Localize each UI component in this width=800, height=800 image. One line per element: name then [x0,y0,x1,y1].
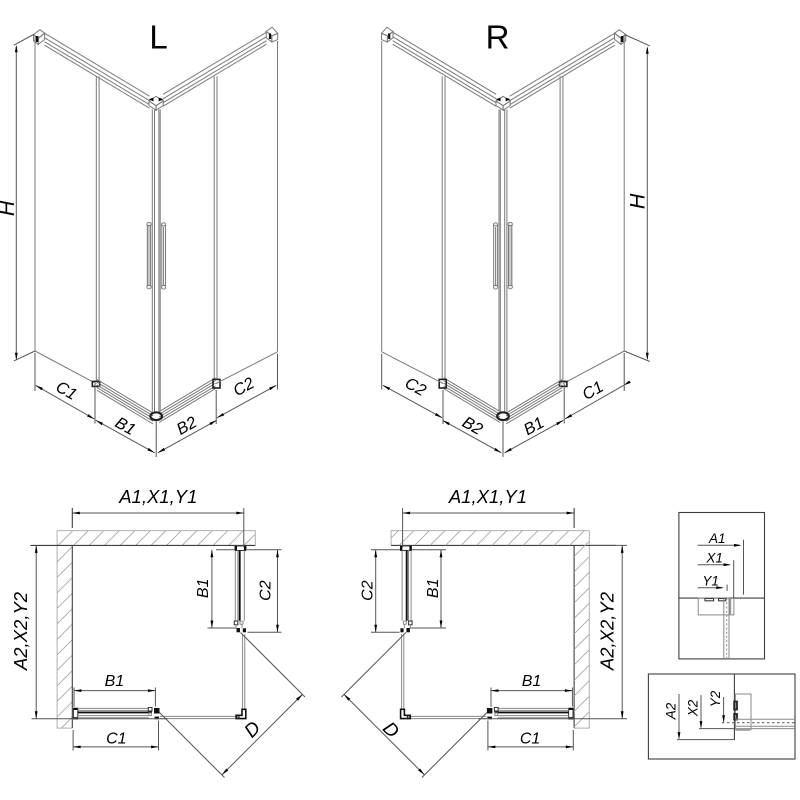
svg-text:B1: B1 [195,579,212,599]
svg-text:B1: B1 [425,579,442,599]
svg-text:X1: X1 [705,550,723,565]
svg-text:C1: C1 [520,730,540,747]
svg-text:A1,X1,Y1: A1,X1,Y1 [448,486,527,507]
svg-text:A1: A1 [708,531,726,546]
svg-text:C1: C1 [106,730,126,747]
svg-text:H: H [0,200,19,216]
svg-text:A2: A2 [664,702,679,720]
svg-text:B1: B1 [105,673,125,690]
svg-text:R: R [486,19,510,56]
svg-text:B1: B1 [522,673,542,690]
svg-text:A1,X1,Y1: A1,X1,Y1 [118,486,197,507]
svg-text:C2: C2 [359,580,376,601]
svg-text:A2,X2,Y2: A2,X2,Y2 [10,591,31,671]
svg-text:Y1: Y1 [702,573,719,588]
svg-text:C2: C2 [257,580,274,601]
svg-text:X2: X2 [686,699,701,717]
svg-text:H: H [625,193,649,209]
svg-text:Y2: Y2 [708,690,723,707]
svg-text:A2,X2,Y2: A2,X2,Y2 [597,591,618,671]
svg-text:L: L [149,19,167,56]
